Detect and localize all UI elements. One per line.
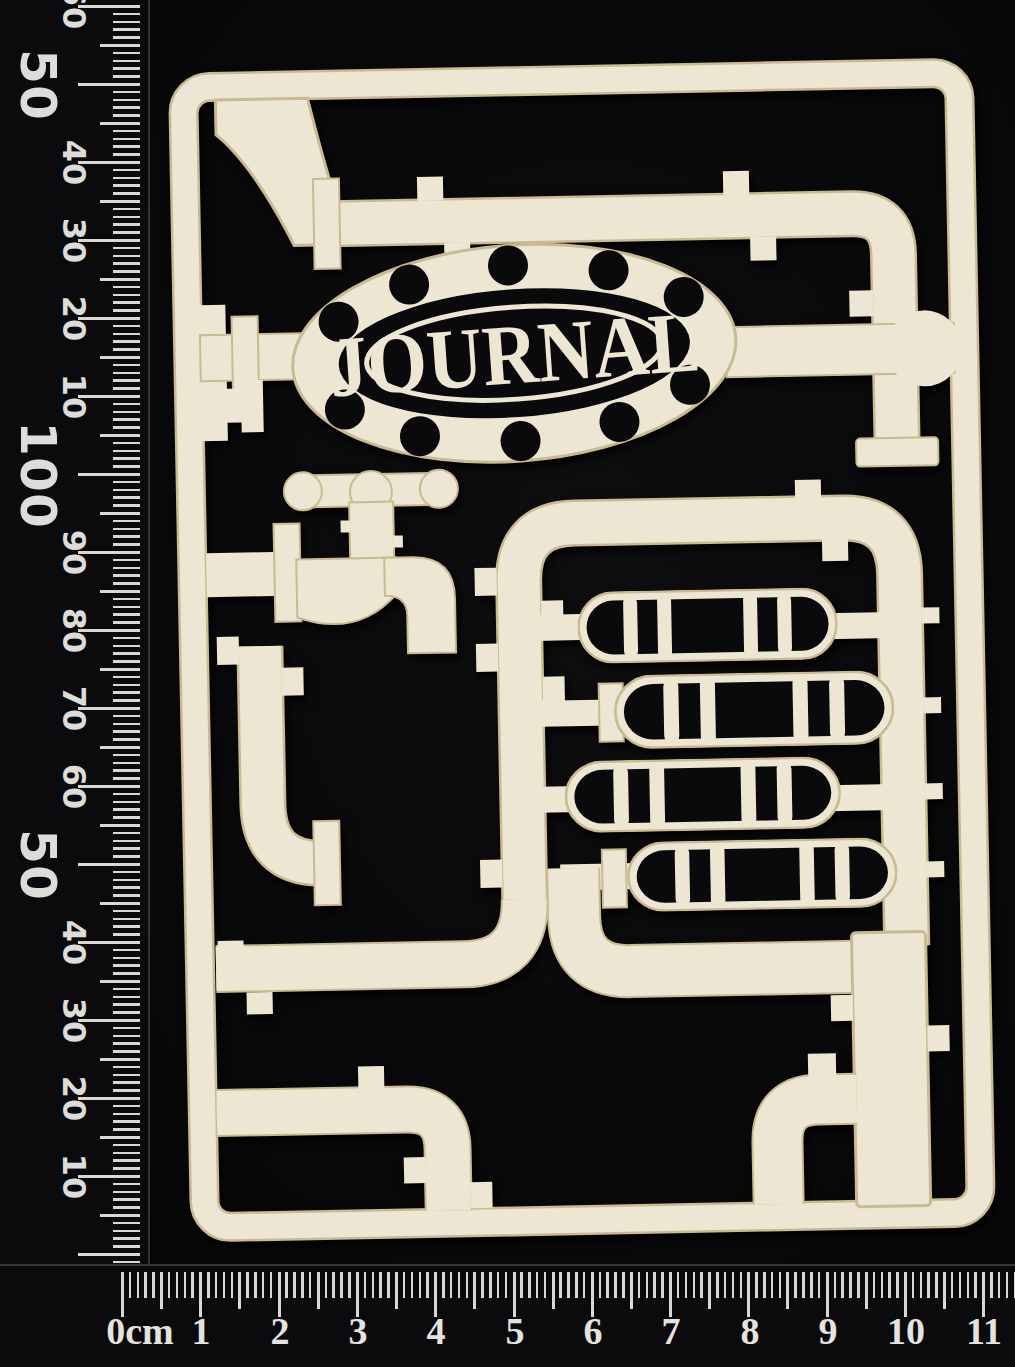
flange-nub bbox=[470, 1182, 492, 1208]
tap-spout bbox=[384, 556, 456, 653]
flange-bar bbox=[313, 821, 341, 905]
ruler-label: 1 bbox=[192, 1309, 211, 1353]
flange-nub bbox=[822, 539, 848, 561]
tap-body bbox=[296, 558, 397, 625]
ruler-label: 7 bbox=[662, 1309, 681, 1353]
flange-nub bbox=[927, 1025, 949, 1051]
flange-nub bbox=[849, 290, 873, 316]
bottom-left-pipe bbox=[216, 1064, 493, 1215]
ruler-label: 5 bbox=[506, 1309, 525, 1353]
ruler-edge-highlight bbox=[0, 1264, 1015, 1266]
horizontal-ruler-ticks-1mm bbox=[121, 1272, 1015, 1298]
ruler-label: 10 bbox=[887, 1309, 925, 1353]
ruler-label: 9 bbox=[819, 1309, 838, 1353]
flange-nub bbox=[808, 1053, 836, 1078]
ruler-label: 8 bbox=[741, 1309, 760, 1353]
flange-bar bbox=[313, 179, 341, 269]
photo-stage: 60 50 40 30 20 10 100 90 80 70 60 50 40 … bbox=[0, 0, 1015, 1367]
flange-nub bbox=[831, 995, 853, 1021]
flange-plate bbox=[856, 437, 939, 467]
horizontal-ruler: 0cm 1 2 3 4 5 6 7 8 9 10 11 bbox=[0, 1264, 1015, 1367]
flange-bar bbox=[241, 380, 264, 432]
right-downpipe bbox=[851, 931, 930, 1206]
flange-nub bbox=[404, 1157, 426, 1183]
plaque-oval: JOURNAL bbox=[285, 230, 743, 477]
flange-nub bbox=[474, 568, 497, 596]
chipboard-piece: JOURNAL bbox=[0, 0, 1015, 1367]
flange-nub bbox=[281, 667, 304, 695]
left-elbow-pipe bbox=[217, 635, 341, 907]
sprue-nub bbox=[921, 607, 939, 623]
flange-nub bbox=[480, 860, 503, 888]
sprue-nub bbox=[923, 697, 941, 713]
flange-nub bbox=[723, 171, 749, 195]
flange-nub bbox=[750, 236, 776, 260]
ruler-label: 6 bbox=[584, 1309, 603, 1353]
flange-nub bbox=[795, 479, 821, 501]
tap bbox=[205, 469, 461, 657]
tank-3 bbox=[565, 757, 840, 832]
ruler-label: 2 bbox=[271, 1309, 290, 1353]
sprue-nub bbox=[925, 783, 943, 799]
flange-nub bbox=[358, 1066, 384, 1090]
flange-nub bbox=[417, 177, 443, 201]
ruler-label: 0cm bbox=[106, 1309, 174, 1353]
tap-stem bbox=[349, 502, 394, 563]
ruler-label: 4 bbox=[427, 1309, 446, 1353]
tap-feed-pipe bbox=[206, 574, 274, 575]
flange-nub bbox=[218, 941, 244, 963]
tap-thread bbox=[393, 535, 403, 547]
ruler-label: 3 bbox=[349, 1309, 368, 1353]
tap-handle-knob bbox=[420, 469, 459, 508]
flange-nub bbox=[247, 992, 273, 1014]
flange-nub bbox=[217, 637, 240, 665]
tank-1 bbox=[578, 588, 837, 663]
ruler-label: 11 bbox=[966, 1309, 1002, 1353]
tap-thread bbox=[340, 520, 350, 532]
bottom-middle-pipe bbox=[776, 1053, 859, 1205]
flange-nub bbox=[476, 644, 499, 672]
journal-plaque: JOURNAL bbox=[198, 225, 964, 479]
sprue-nub bbox=[926, 861, 944, 877]
tank-4 bbox=[628, 838, 897, 911]
flange-bar bbox=[602, 849, 627, 907]
tank-2 bbox=[615, 671, 894, 748]
tap-handle-knob bbox=[284, 472, 323, 511]
